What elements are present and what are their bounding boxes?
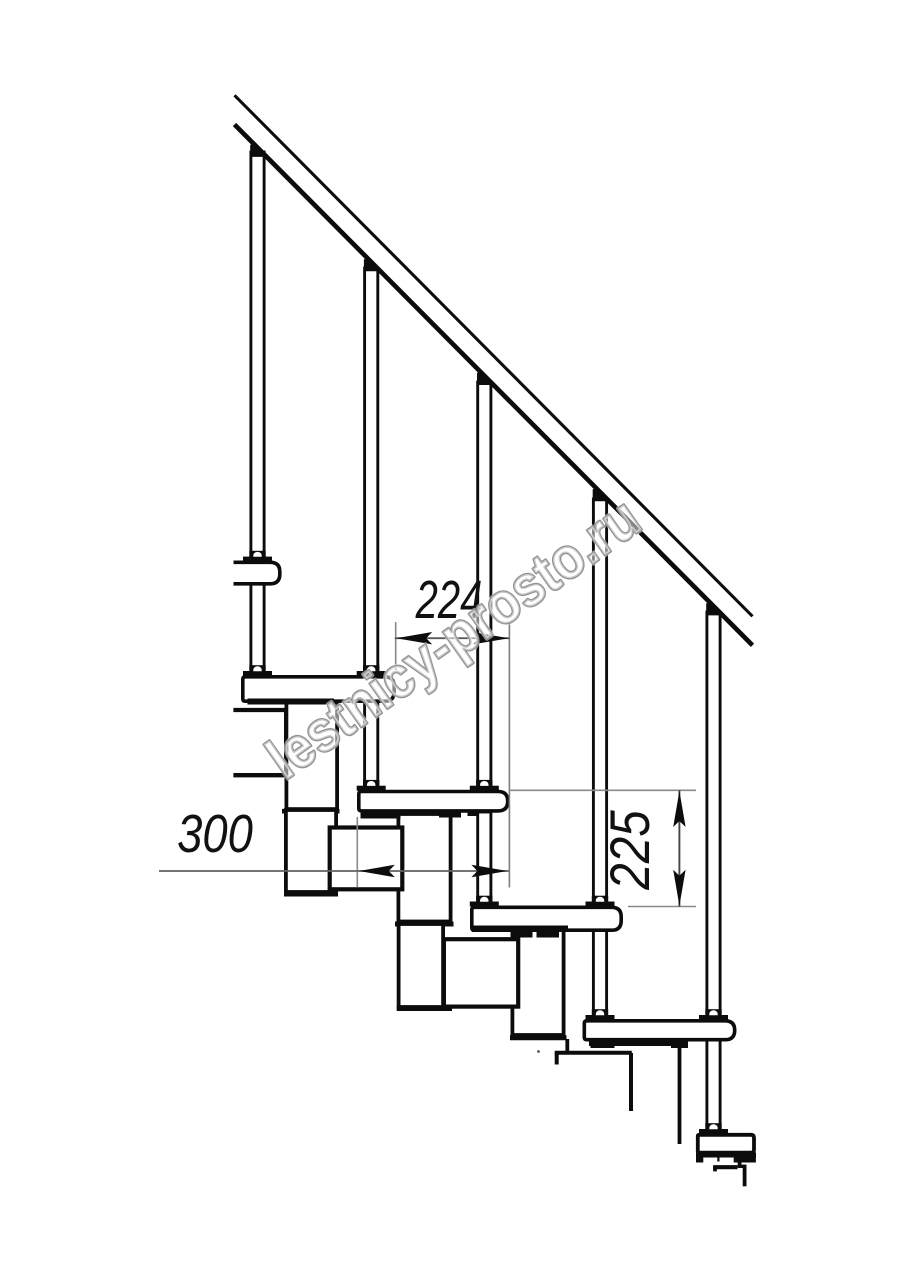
svg-text:300: 300	[177, 803, 253, 864]
svg-text:225: 225	[599, 809, 661, 890]
